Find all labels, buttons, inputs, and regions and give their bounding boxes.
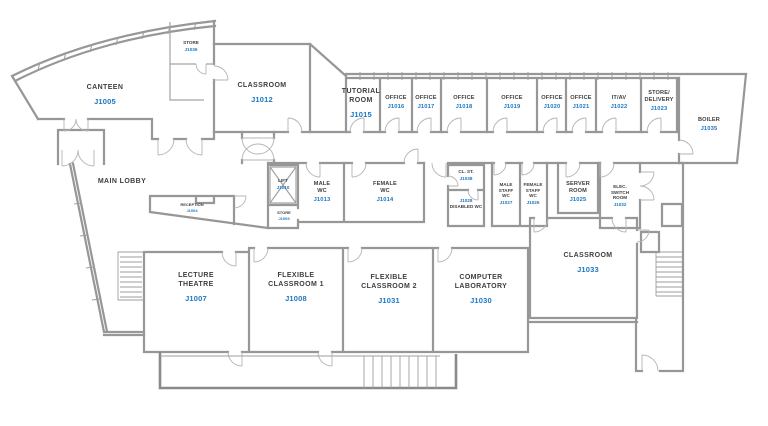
room-name: STORE — [183, 40, 199, 45]
room-name: MALE WC — [314, 181, 330, 194]
room-id: J1009 — [269, 216, 299, 221]
room-name: IT/AV — [612, 95, 627, 101]
walls-partitions — [170, 22, 214, 100]
room-label-server-room: SERVER ROOMJ1025 — [563, 181, 593, 204]
floorplan-drawing — [0, 0, 768, 426]
room-name: OFFICE — [453, 95, 474, 101]
room-name: CL. ST. — [458, 169, 473, 174]
room-name: CLASSROOM — [237, 82, 286, 89]
room-id: J1030 — [453, 296, 509, 305]
room-name: OFFICE — [570, 95, 591, 101]
room-label-lecture-theatre: LECTURE THEATREJ1007 — [168, 272, 224, 303]
room-id: J1021 — [566, 104, 596, 111]
room-label-office-j1019: OFFICEJ1019 — [494, 95, 530, 111]
room-label-store-j1036: STOREJ1036 — [171, 40, 211, 52]
room-label-store-j1009: STOREJ1009 — [269, 210, 299, 221]
room-name: TUTORIAL ROOM — [342, 88, 380, 104]
room-id: J1004 — [160, 208, 224, 213]
room-id: J1017 — [412, 104, 440, 111]
room-label-flexible-classroom-2: FLEXIBLE CLASSROOM 2J1031 — [359, 274, 419, 305]
room-label-disabled-wc: J1028DISABLED WC — [448, 197, 484, 209]
room-name: LIFT — [278, 178, 288, 183]
room-name: MALE STAFF WC — [499, 182, 513, 198]
room-id: J1025 — [563, 197, 593, 204]
room-name: LECTURE THEATRE — [178, 272, 214, 288]
room-name: DISABLED WC — [450, 204, 482, 209]
room-id: J1019 — [494, 104, 530, 111]
room-label-female-wc: FEMALE WCJ1014 — [370, 181, 400, 204]
room-label-office-j1017: OFFICEJ1017 — [412, 95, 440, 111]
room-name: OFFICE — [385, 95, 406, 101]
room-id: J1005 — [63, 97, 147, 106]
room-id: J1031 — [359, 296, 419, 305]
room-name: OFFICE — [541, 95, 562, 101]
room-name: BOILER — [698, 117, 720, 123]
room-name: MAIN LOBBY — [98, 178, 146, 185]
room-name: ELEC. SWITCH ROOM — [611, 184, 629, 200]
room-name: CLASSROOM — [563, 252, 612, 259]
room-label-canteen: CANTEENJ1005 — [63, 84, 147, 106]
terrace-outline — [160, 352, 456, 388]
room-label-lift: LIFTJ1010 — [268, 178, 298, 190]
room-label-main-lobby: MAIN LOBBY — [95, 178, 149, 187]
room-name: CANTEEN — [87, 84, 124, 91]
room-id: J1022 — [601, 104, 637, 111]
room-id: J1038 — [450, 176, 482, 182]
room-id: J1033 — [546, 265, 630, 274]
room-label-office-j1021: OFFICEJ1021 — [566, 95, 596, 111]
stairs-right — [656, 252, 682, 296]
room-label-computer-laboratory: COMPUTER LABORATORYJ1030 — [453, 274, 509, 305]
room-name: SERVER ROOM — [566, 181, 590, 194]
room-name: OFFICE — [501, 95, 522, 101]
room-name: OFFICE — [415, 95, 436, 101]
room-label-male-staff-wc: MALE STAFF WCJ1027 — [496, 182, 516, 206]
room-label-boiler: BOILERJ1035 — [682, 117, 736, 133]
room-id: J1035 — [682, 126, 736, 133]
room-id: J1013 — [309, 197, 335, 204]
room-id: J1014 — [370, 197, 400, 204]
room-id: J1010 — [268, 185, 298, 191]
room-name: RECEPTION — [180, 202, 203, 207]
room-name: FLEXIBLE CLASSROOM 2 — [361, 274, 417, 290]
room-name: STORE — [277, 210, 291, 215]
room-label-male-wc: MALE WCJ1013 — [309, 181, 335, 204]
room-label-cleaners-store: CL. ST.J1038 — [450, 169, 482, 181]
room-id: J1036 — [171, 47, 211, 53]
room-name: FEMALE WC — [373, 181, 397, 194]
room-label-classroom-j1033: CLASSROOMJ1033 — [546, 252, 630, 274]
room-id: J1016 — [382, 104, 410, 111]
room-label-office-j1018: OFFICEJ1018 — [446, 95, 482, 111]
room-label-elec-switch-room: ELEC. SWITCH ROOMJ1032 — [608, 184, 632, 208]
room-name: STORE/ DELIVERY — [645, 90, 674, 103]
room-id: J1015 — [339, 110, 383, 119]
stairs-lobby — [118, 252, 144, 300]
room-id: J1007 — [168, 294, 224, 303]
room-id: J1008 — [266, 294, 326, 303]
room-label-store-delivery: STORE/ DELIVERYJ1023 — [641, 90, 677, 113]
room-name: FLEXIBLE CLASSROOM 1 — [268, 272, 324, 288]
room-label-office-j1020: OFFICEJ1020 — [537, 95, 567, 111]
room-label-itav: IT/AVJ1022 — [601, 95, 637, 111]
room-label-office-j1016: OFFICEJ1016 — [382, 95, 410, 111]
terrace-steps — [364, 356, 436, 388]
floor-plan: CANTEENJ1005 STOREJ1036 CLASSROOMJ1012 T… — [0, 0, 768, 426]
room-id: J1027 — [496, 200, 516, 206]
room-id: J1012 — [220, 95, 304, 104]
room-name: COMPUTER LABORATORY — [455, 274, 507, 290]
room-label-tutorial-room: TUTORIAL ROOMJ1015 — [339, 88, 383, 119]
room-label-reception: RECEPTIONJ1004 — [160, 202, 224, 213]
room-id: J1026 — [523, 200, 543, 206]
room-id: J1020 — [537, 104, 567, 111]
room-id: J1018 — [446, 104, 482, 111]
room-label-female-staff-wc: FEMALE STAFF WCJ1026 — [523, 182, 543, 206]
room-id: J1032 — [608, 202, 632, 208]
room-label-flexible-classroom-1: FLEXIBLE CLASSROOM 1J1008 — [266, 272, 326, 303]
room-label-classroom-j1012: CLASSROOMJ1012 — [220, 82, 304, 104]
room-name: FEMALE STAFF WC — [524, 182, 543, 198]
room-id: J1023 — [641, 106, 677, 113]
